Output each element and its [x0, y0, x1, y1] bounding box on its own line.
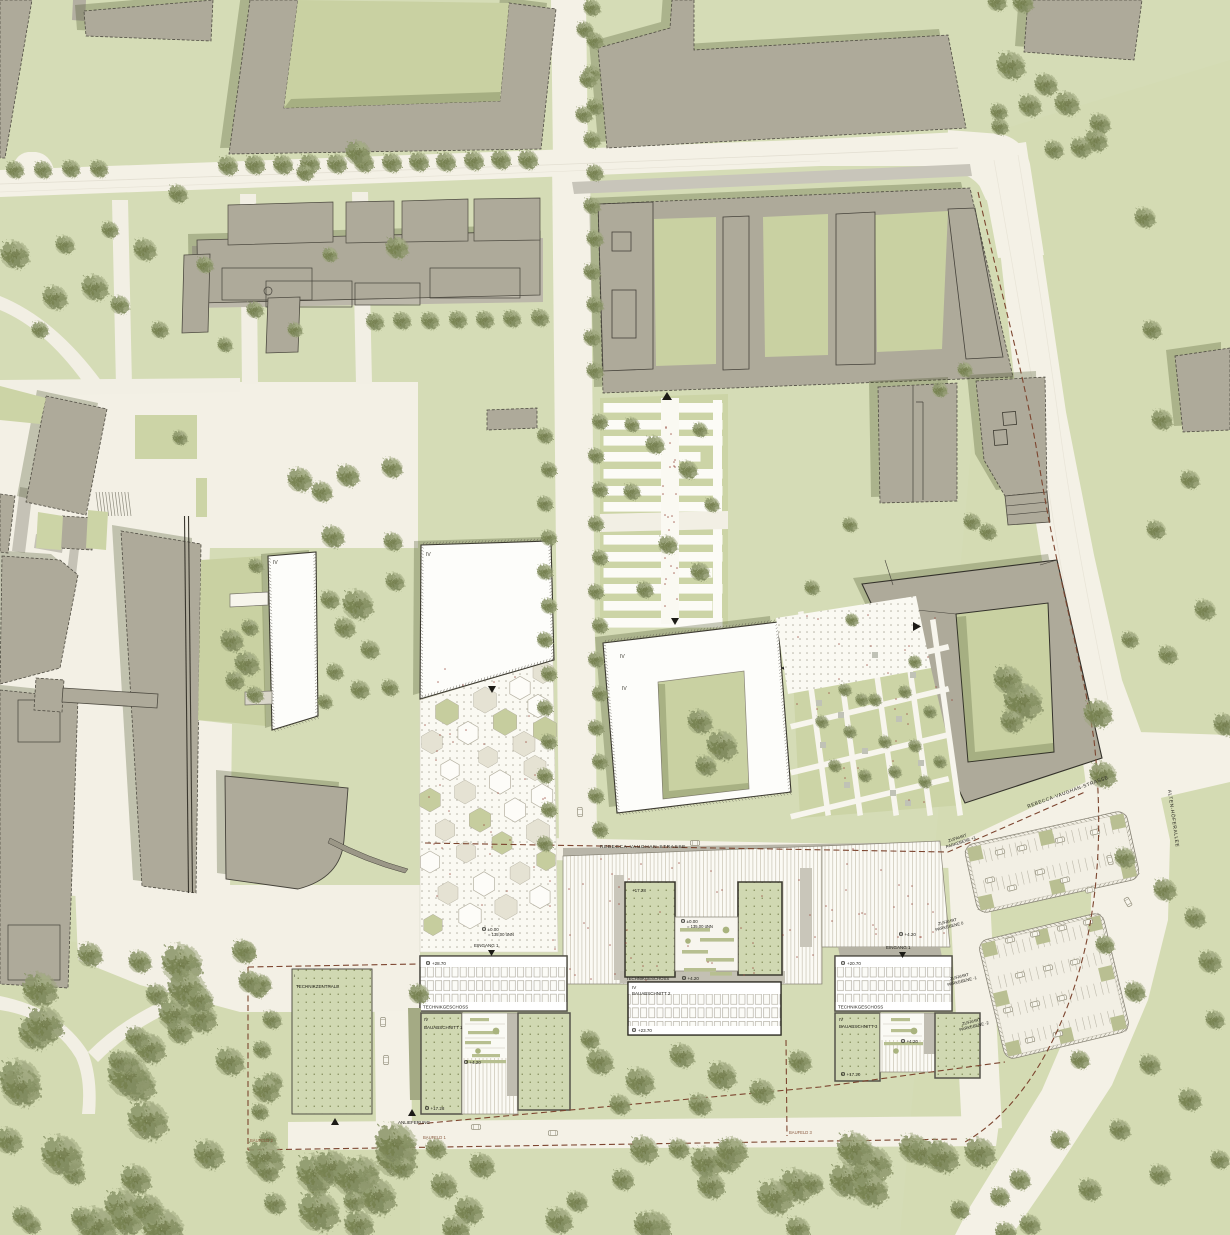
- svg-text:+4.20: +4.20: [907, 1039, 919, 1044]
- svg-text:IV: IV: [632, 985, 636, 990]
- svg-text:REBECCA-VAUGHAN-STRASSE: REBECCA-VAUGHAN-STRASSE: [600, 844, 686, 850]
- svg-text:ANLIEFERUNG: ANLIEFERUNG: [398, 1120, 431, 1125]
- svg-text:+17.28: +17.28: [431, 1106, 445, 1111]
- svg-text:= 135,00 üNN: = 135,00 üNN: [488, 932, 514, 937]
- svg-text:TECHNIKGESCHOSS: TECHNIKGESCHOSS: [423, 1005, 468, 1010]
- svg-text:+17.20: +17.20: [847, 1072, 861, 1077]
- svg-text:I: I: [294, 973, 295, 978]
- svg-text:+28.70: +28.70: [432, 961, 446, 966]
- svg-text:+20.70: +20.70: [847, 961, 861, 966]
- svg-text:+4.20: +4.20: [470, 1060, 482, 1065]
- svg-text:+4.20: +4.20: [905, 932, 917, 937]
- svg-text:IV: IV: [424, 1017, 428, 1022]
- svg-text:IV: IV: [273, 560, 278, 566]
- svg-text:BAUABSCHNITT 3: BAUABSCHNITT 3: [839, 1024, 878, 1029]
- svg-text:BAUABSCHNITT 1: BAUABSCHNITT 1: [424, 1025, 463, 1030]
- svg-text:+17.28: +17.28: [632, 888, 646, 893]
- svg-text:IV: IV: [622, 686, 627, 692]
- svg-text:EINGANG 1: EINGANG 1: [474, 943, 499, 948]
- svg-text:BAUFELD 1: BAUFELD 1: [423, 1135, 446, 1140]
- svg-text:IV: IV: [620, 654, 625, 660]
- svg-text:= 135,00 üNN: = 135,00 üNN: [687, 924, 713, 929]
- svg-text:IV: IV: [839, 1017, 843, 1022]
- svg-text:TECHNIKGESCHOSS: TECHNIKGESCHOSS: [626, 976, 669, 981]
- svg-text:TECHNIKZENTRALE: TECHNIKZENTRALE: [296, 984, 339, 989]
- svg-text:+23.70: +23.70: [638, 1028, 652, 1033]
- svg-text:BAUABSCHNITT 2: BAUABSCHNITT 2: [632, 991, 671, 996]
- svg-text:BAUFELD 3: BAUFELD 3: [789, 1130, 812, 1135]
- svg-text:IV: IV: [426, 552, 431, 558]
- svg-text:TECHNIKGESCHOSS: TECHNIKGESCHOSS: [838, 1005, 883, 1010]
- svg-text:BAUFELD 2: BAUFELD 2: [250, 1138, 273, 1143]
- svg-text:EINGANG 1: EINGANG 1: [886, 945, 911, 950]
- svg-text:+4.20: +4.20: [688, 976, 700, 981]
